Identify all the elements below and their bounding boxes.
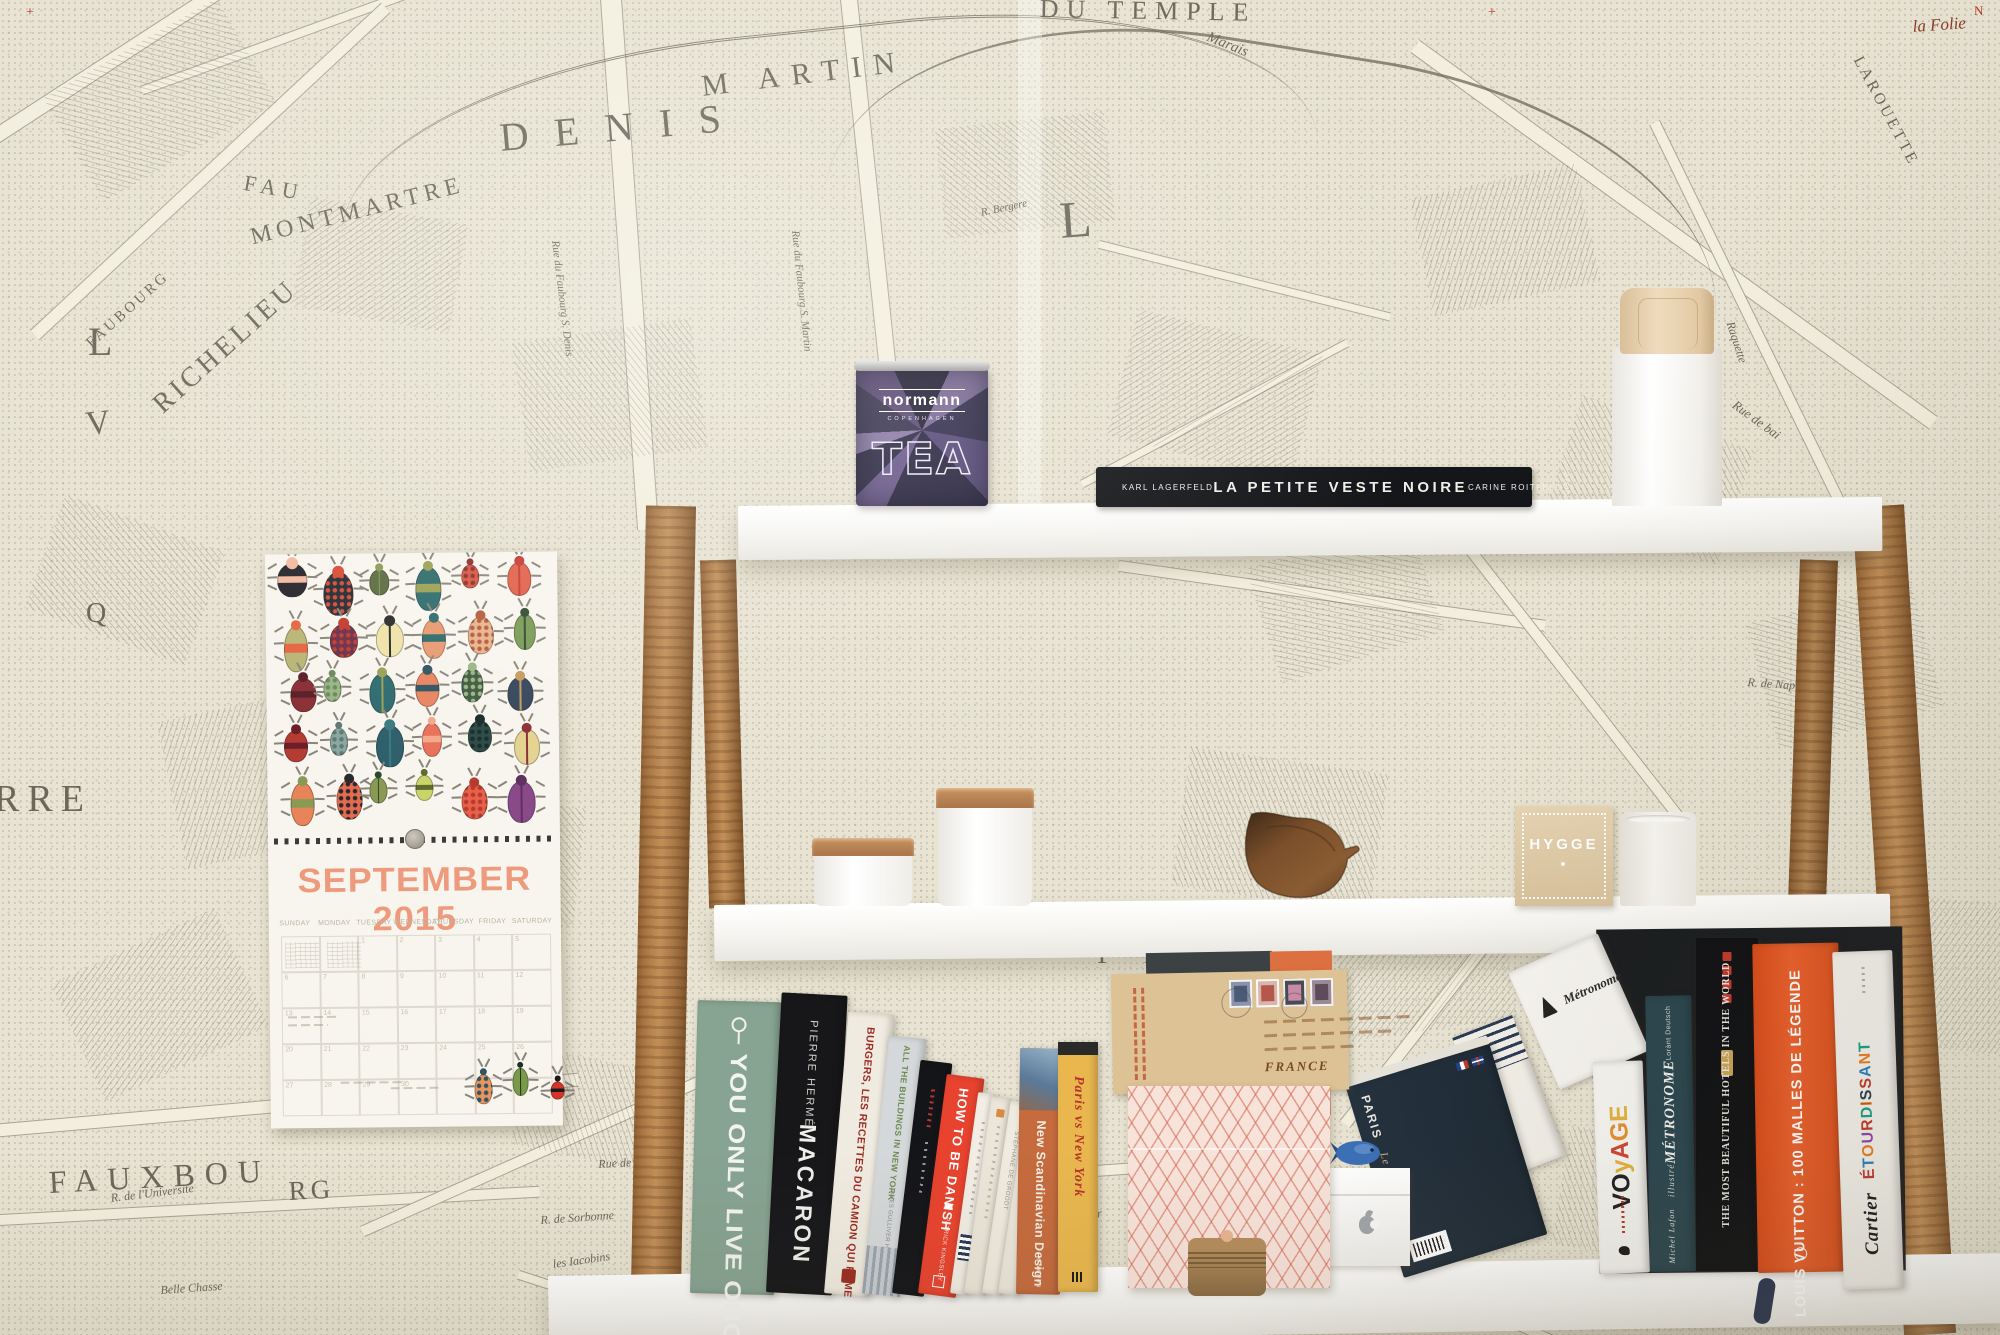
book-author-right: CARINE ROITFELD xyxy=(1468,483,1563,492)
yolo-logo-stem xyxy=(738,1032,740,1044)
wooden-bird-figurine xyxy=(1238,808,1364,906)
tea-brand-text: normann xyxy=(879,389,966,412)
kraft-envelope: AIR MAIL PAR AVION FRANCE xyxy=(1111,970,1349,1095)
danish-logo xyxy=(932,1275,945,1288)
book-spine-text: Lorànt Deutsch xyxy=(1665,1006,1673,1061)
yolo-logo xyxy=(731,1017,746,1032)
white-bottle-vase xyxy=(1612,348,1722,506)
postage-stamp xyxy=(1256,979,1280,1007)
book-publisher: STEIDL xyxy=(1563,473,1569,500)
book-spine-text: illustré xyxy=(1667,1164,1677,1198)
small-canister-cork-lid xyxy=(812,838,914,856)
tall-canister-cork-lid xyxy=(936,788,1034,808)
metronome-icon xyxy=(1532,986,1558,1018)
photo-bookshelf-scene: DENISM ARTINDU TEMPLEMaraisMONTMARTRERIC… xyxy=(0,0,2000,1335)
parisny-logo xyxy=(1072,1272,1084,1282)
book-etourdissant-cartier: ÉTOURDISSANTCartier xyxy=(1832,950,1904,1290)
white-bottle-vase-wood-top xyxy=(1620,288,1714,354)
thin-black-red-text xyxy=(926,1087,935,1127)
tea-brand-sub: COPENHAGEN xyxy=(856,416,988,422)
book-spine-text: PIERRE HERMÉ xyxy=(802,1020,819,1128)
hygge-candle-box: HYGGE xyxy=(1515,806,1613,906)
paperback-accent xyxy=(996,1109,1005,1118)
apple-iphone-box xyxy=(1324,1168,1410,1266)
flag-france xyxy=(1456,1060,1470,1071)
white-candle xyxy=(1620,812,1696,906)
book-spine-text: Michel Lafon xyxy=(1668,1209,1677,1264)
book-paris-vs-new-york: Paris vs New York xyxy=(1058,1042,1098,1292)
hygge-label: HYGGE xyxy=(1515,836,1613,853)
book-spine-text: MÉTRONOME xyxy=(1662,1060,1678,1164)
blue-fish-figurine xyxy=(1326,1136,1384,1172)
envelope-country: FRANCE xyxy=(1265,1058,1330,1075)
barcode xyxy=(1407,1230,1452,1263)
tea-label: TEA xyxy=(856,434,988,485)
book-spine-text: THE MOST BEAUTIFUL HOTELS IN THE WORLD xyxy=(1722,962,1732,1227)
book-louis-vuitton-100-malles: LOUIS VUITTON : 100 MALLES DE LÉGENDE xyxy=(1752,943,1844,1273)
book-most-beautiful-hotels: THE MOST BEAUTIFUL HOTELS IN THE WORLD xyxy=(1696,938,1758,1271)
book-spine-text: LOUIS VUITTON : 100 MALLES DE LÉGENDE xyxy=(1788,969,1809,1317)
danish-bird-glyph xyxy=(944,1203,953,1210)
burgers-logo xyxy=(841,1268,856,1283)
book-spine-text: YOU ONLY LIVE ONCE xyxy=(719,1053,750,1335)
voyage-bird-logo xyxy=(1619,1246,1630,1255)
book-spine-text: Paris vs New York xyxy=(1071,1076,1085,1197)
book-metronome-illustre: Lorànt DeutschMÉTRONOMEillustréMichel La… xyxy=(1645,995,1696,1272)
book-spine-text: Cartier xyxy=(1861,1192,1882,1256)
book-la-petite-veste-noire: KARL LAGERFELD LA PETITE VESTE NOIRE CAR… xyxy=(1096,467,1532,507)
book-spine-text: MACARON xyxy=(789,1123,819,1265)
postage-stamp xyxy=(1310,978,1334,1006)
hygge-box-dotted-border xyxy=(1522,813,1606,899)
tall-canister xyxy=(938,808,1032,906)
books: YOU ONLY LIVE ONCEPIERRE HERMÉMACARONBUR… xyxy=(0,0,2000,1335)
tea-tin-lid xyxy=(854,361,990,371)
flag-uk xyxy=(1471,1055,1485,1066)
book-cover-text: Métronome xyxy=(1561,968,1624,1008)
book-voyage: VOyAGE xyxy=(1593,1060,1650,1274)
apple-logo-icon xyxy=(1359,1216,1375,1234)
tea-tin: normann COPENHAGEN TEA xyxy=(856,368,988,506)
hotels-red-glyph xyxy=(1723,952,1732,961)
hygge-dot xyxy=(1561,862,1565,866)
book-title: LA PETITE VESTE NOIRE xyxy=(1213,479,1468,496)
book-spine-text: PARIS xyxy=(1359,1094,1384,1141)
book-author-left: KARL LAGERFELD xyxy=(1122,483,1213,492)
book-spine-text: teNeues xyxy=(1035,1255,1043,1288)
parisny-pages-top xyxy=(1058,1042,1098,1055)
cartier-letters: ÉTOURDISSANT xyxy=(1857,1041,1878,1180)
tea-brand: normann xyxy=(856,392,988,410)
cartier-small-text xyxy=(1861,963,1865,993)
small-canister xyxy=(814,856,912,906)
thin-black-white-text xyxy=(919,1141,928,1193)
voyage-letters: VOyAGE xyxy=(1607,1105,1636,1210)
wooden-candle-holder xyxy=(1188,1238,1266,1296)
